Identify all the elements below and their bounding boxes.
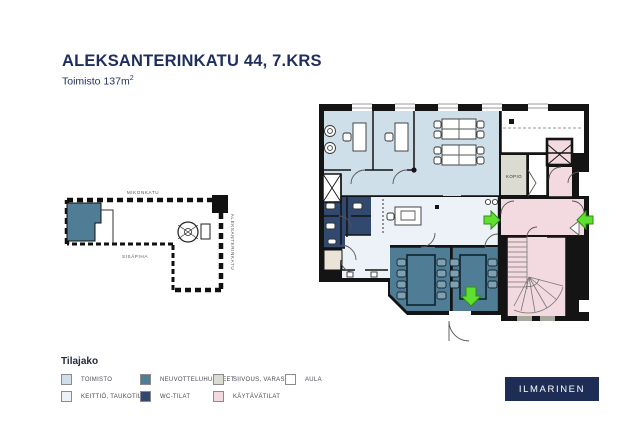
legend: Tilajako TOIMISTO NEUVOTTELUHUONEET SIIV… <box>61 356 371 402</box>
ilmarinen-logo-text: ILMARINEN <box>519 384 585 395</box>
legend-swatch-toimisto <box>61 374 72 385</box>
street-label-mikonkatu: MIKONKATU <box>127 190 159 195</box>
corridor-upper <box>549 167 572 197</box>
legend-item: WC-TILAT <box>140 391 213 402</box>
courtyard-label-sisapiha: SISÄPIHA <box>122 253 148 259</box>
floor-plan-drawing: KOPIO <box>295 75 625 345</box>
page-subtitle: Toimisto 137m2 <box>62 75 322 88</box>
legend-swatch-neuvotteluhuoneet <box>140 374 151 385</box>
stairwell <box>507 237 566 316</box>
column-small <box>435 205 439 209</box>
legend-item: AULA <box>285 374 345 385</box>
site-highlight-current-floor-area <box>67 203 101 241</box>
page: ALEKSANTERINKATU 44, 7.KRS Toimisto 137m… <box>0 0 643 448</box>
elevator-shaft <box>547 139 572 165</box>
desk <box>395 123 408 151</box>
room-storage-small <box>529 155 547 195</box>
header: ALEKSANTERINKATU 44, 7.KRS Toimisto 137m… <box>62 52 322 88</box>
legend-item: KÄYTÄVÄTILAT <box>213 391 285 402</box>
legend-swatch-wc-tilat <box>140 391 151 402</box>
legend-item: TOIMISTO <box>61 374 140 385</box>
reception-desk <box>395 207 421 225</box>
legend-grid: TOIMISTO NEUVOTTELUHUONEET SIIVOUS, VARA… <box>61 374 371 402</box>
room-cleaning <box>324 250 342 270</box>
subtitle-superscript: 2 <box>130 75 134 82</box>
page-title: ALEKSANTERINKATU 44, 7.KRS <box>62 52 322 71</box>
legend-title: Tilajako <box>61 356 371 367</box>
legend-swatch-siivous-varasto <box>213 374 224 385</box>
desk <box>353 123 366 151</box>
structural-column <box>411 167 416 172</box>
legend-swatch-aula <box>285 374 296 385</box>
ilmarinen-logo: ILMARINEN <box>505 377 599 401</box>
entrance-door-gap <box>449 311 471 321</box>
room-label-kopio: KOPIO <box>506 174 522 179</box>
entrance-door-swing <box>449 321 469 341</box>
street-label-aleksanterinkatu: ALEKSANTERINKATU <box>230 214 235 270</box>
site-location-map: MIKONKATU SISÄPIHA ALEKSANTERINKATU <box>55 170 240 295</box>
column-aula <box>509 119 514 124</box>
legend-swatch-kaytavatilat <box>213 391 224 402</box>
site-interior-details <box>101 210 210 243</box>
legend-item: KEITTIÖ, TAUKOTILAT <box>61 391 140 402</box>
legend-swatch-keittio-taukotilat <box>61 391 72 402</box>
legend-item: SIIVOUS, VARASTO <box>213 374 285 385</box>
legend-item: NEUVOTTELUHUONEET <box>140 374 213 385</box>
